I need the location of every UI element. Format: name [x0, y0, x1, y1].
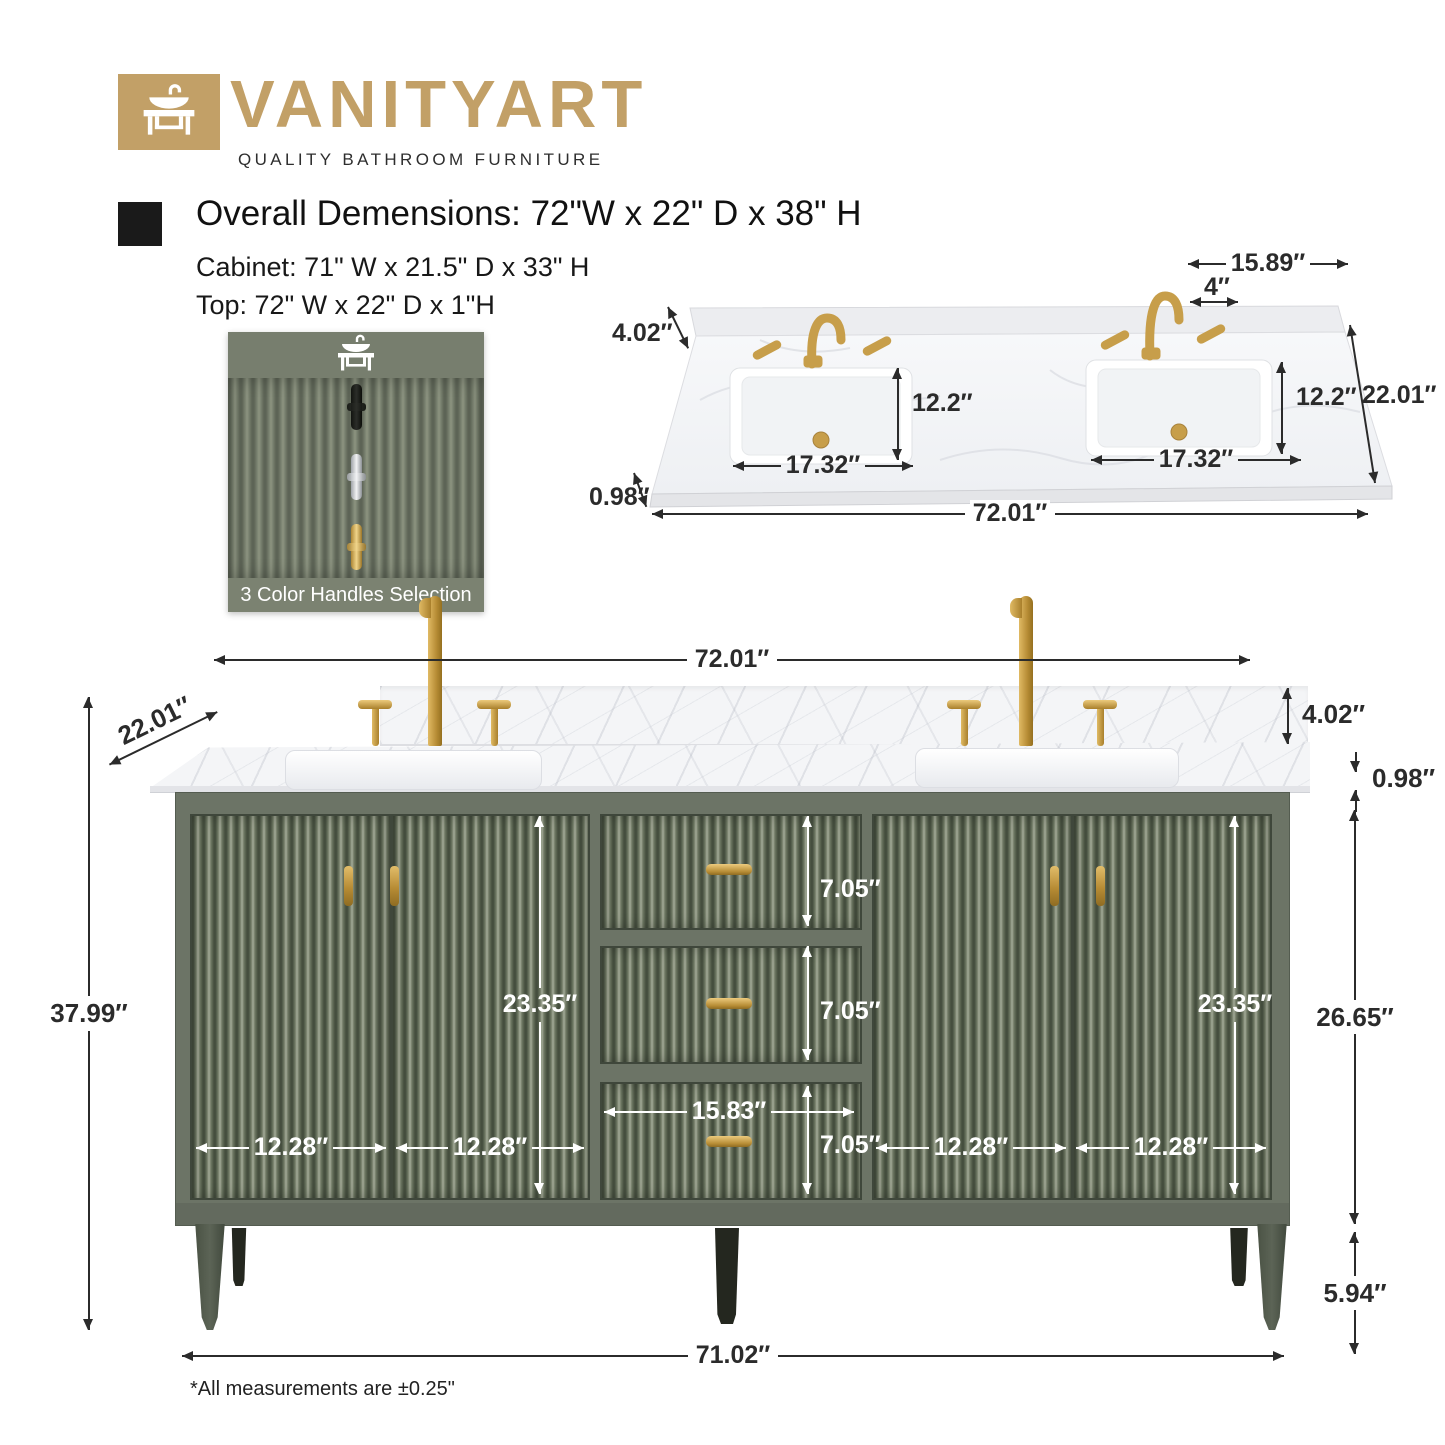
drawer-handle	[706, 864, 752, 875]
dim-top-right-sink-depth-arrow	[1281, 362, 1283, 454]
right-drain	[1171, 424, 1187, 440]
dim-label: 0.98″	[1372, 763, 1435, 793]
dimension-arrow	[196, 1147, 249, 1149]
dimension-arrow	[539, 1022, 541, 1194]
dim-front-backsplash-arrow	[1287, 688, 1289, 744]
dim-overall-height: 37.99″	[43, 697, 135, 1330]
dim-top-faucet-spacing: 4″	[1204, 274, 1230, 302]
left-faucet-handle-bar	[477, 700, 511, 709]
dimension-arrow	[1188, 263, 1226, 265]
dim-label: 37.99″	[47, 999, 131, 1028]
dim-label: 17.32″	[786, 452, 861, 480]
dim-top-left-sink-depth: 12.2″	[912, 390, 973, 418]
dimension-arrow	[652, 513, 965, 515]
dimension-arrow	[807, 816, 809, 926]
dimension-arrow	[876, 1147, 929, 1149]
left-sink-front	[285, 750, 542, 790]
panel-header-band	[228, 332, 484, 378]
front-right-leg	[1256, 1224, 1288, 1330]
dimension-arrow	[1234, 1022, 1236, 1194]
right-faucet-handle-bar	[947, 700, 981, 709]
dim-label: 12.28″	[254, 1134, 329, 1162]
dim-label: 15.89″	[1231, 250, 1306, 278]
rear-leg	[1228, 1228, 1250, 1286]
dim-label: 12.2″	[1296, 383, 1357, 411]
top-dimensions-text: Top: 72" W x 22" D x 1"H	[196, 290, 495, 321]
measurement-tolerance-note: *All measurements are ±0.25"	[190, 1378, 455, 1401]
dimension-arrow	[777, 659, 1250, 661]
handle-option-chrome	[351, 454, 362, 500]
dim-door-width-1: 12.28″	[196, 1134, 386, 1162]
dim-front-thickness: 0.98″	[1372, 764, 1435, 793]
dimension-arrow	[1076, 1147, 1129, 1149]
overall-dimensions-heading: Overall Demensions: 72"W x 22" D x 38" H	[196, 194, 862, 234]
dimension-arrow	[1013, 1147, 1066, 1149]
dim-door-width-3: 12.28″	[876, 1134, 1066, 1162]
heading-bullet	[118, 202, 162, 246]
dim-top-depth: 22.01″	[1362, 382, 1437, 410]
dimension-arrow	[88, 697, 90, 996]
dim-label: 12.2″	[912, 389, 973, 417]
dim-drawer2-arrow	[807, 946, 809, 1060]
left-faucet-handle	[372, 706, 379, 746]
dim-right-door-height: 23.35″	[1187, 816, 1283, 1194]
dim-drawer2-height: 7.05″	[820, 998, 881, 1026]
dim-cabinet-body-height: 26.65″	[1311, 810, 1399, 1224]
vanity-dimension-sheet: VANITYART QUALITY BATHROOM FURNITURE Ove…	[0, 0, 1445, 1445]
dim-label: 4.02″	[1302, 699, 1365, 729]
door-handle	[1096, 866, 1105, 906]
dim-label: 26.65″	[1313, 1003, 1397, 1032]
dim-label: 72.01″	[970, 500, 1051, 528]
dimension-arrow	[1355, 790, 1357, 812]
vanity-sink-icon	[138, 83, 200, 142]
dim-top-left-sink-width: 17.32″	[733, 452, 913, 480]
brand-tagline: QUALITY BATHROOM FURNITURE	[238, 150, 603, 170]
right-faucet-handle	[961, 706, 968, 746]
drawer-handle	[706, 1136, 752, 1147]
dimension-arrow	[1310, 263, 1348, 265]
dimension-arrow	[1354, 810, 1356, 1000]
handles-selection-panel: 3 Color Handles Selection	[228, 332, 484, 612]
dim-label: 7.05″	[820, 875, 881, 903]
dimension-arrow	[88, 1031, 90, 1330]
dim-label: 23.35″	[1198, 991, 1273, 1019]
dim-top-right-sink-width: 17.32″	[1091, 446, 1301, 474]
left-faucet-handle	[491, 706, 498, 746]
dimension-arrow	[333, 1147, 386, 1149]
dimension-arrow	[604, 1111, 687, 1113]
left-sink-basin	[730, 368, 912, 464]
dim-top-left-sink-depth-arrow	[897, 368, 899, 460]
dim-left-door-height: 23.35″	[492, 816, 588, 1194]
dimension-arrow	[778, 1355, 1284, 1357]
panel-caption-band: 3 Color Handles Selection	[228, 578, 484, 612]
dimension-arrow	[897, 368, 899, 460]
dim-front-backsplash-height: 4.02″	[1302, 700, 1365, 729]
dim-label: 72.01″	[692, 646, 773, 674]
dim-label: 15.83″	[692, 1098, 767, 1126]
left-drain	[813, 432, 829, 448]
dim-label: 7.05″	[820, 1131, 881, 1159]
dimension-arrow	[1055, 513, 1368, 515]
dim-front-thickness-arrows	[1355, 752, 1357, 812]
brand-logo	[118, 74, 220, 150]
front-left-leg	[194, 1224, 226, 1330]
dim-label: 71.02″	[693, 1342, 774, 1370]
vanity-sink-icon	[334, 334, 378, 377]
right-faucet-handle	[1097, 706, 1104, 746]
dimension-arrow	[396, 1147, 448, 1149]
dim-label: 12.28″	[934, 1134, 1009, 1162]
right-sink-front	[915, 748, 1179, 788]
brand-name: VANITYART	[230, 66, 647, 143]
dim-label: 17.32″	[1159, 446, 1234, 474]
dimension-arrow	[1355, 752, 1357, 772]
dim-drawer3-height: 7.05″	[820, 1132, 881, 1160]
door-handle	[344, 866, 353, 906]
drawer-handle	[706, 998, 752, 1009]
right-faucet-handle-bar	[1083, 700, 1117, 709]
right-sink-basin	[1086, 360, 1272, 456]
dimension-arrow	[771, 1111, 854, 1113]
center-leg	[712, 1228, 742, 1324]
dimension-arrow	[807, 946, 809, 1060]
dimension-arrow	[865, 465, 913, 467]
dim-leg-height: 5.94″	[1313, 1232, 1397, 1354]
dimension-arrow	[182, 1355, 688, 1357]
dim-drawer1-arrow	[807, 816, 809, 926]
front-backsplash	[380, 686, 1308, 746]
dim-drawer1-height: 7.05″	[820, 876, 881, 904]
left-faucet-handle-bar	[358, 700, 392, 709]
cabinet-dimensions-text: Cabinet: 71" W x 21.5" D x 33" H	[196, 252, 589, 283]
dim-label: 23.35″	[503, 991, 578, 1019]
dim-label: 4″	[1204, 273, 1230, 301]
dimension-arrow	[1354, 1232, 1356, 1276]
handle-option-gold	[351, 524, 362, 570]
dimension-arrow	[1234, 816, 1236, 988]
dimension-arrow	[1354, 1034, 1356, 1224]
handle-option-black	[351, 384, 362, 430]
dim-top-right-sink-depth: 12.2″	[1296, 384, 1357, 412]
dim-label: 22.01″	[1362, 381, 1437, 409]
dimension-arrow	[1091, 459, 1154, 461]
countertop-top-view	[595, 235, 1445, 520]
dimension-arrow	[1354, 1310, 1356, 1354]
dimension-arrow	[539, 816, 541, 988]
dimension-arrow	[1287, 688, 1289, 744]
dimension-arrow	[1238, 459, 1301, 461]
backsplash-top	[690, 306, 1345, 336]
dim-top-counter-width: 72.01″	[652, 500, 1368, 528]
rear-leg	[230, 1228, 248, 1286]
dim-label: 4.02″	[612, 319, 673, 347]
dim-front-counter-width: 72.01″	[214, 646, 1250, 674]
dimension-arrow	[1281, 362, 1283, 454]
dim-drawer-width: 15.83″	[604, 1098, 854, 1126]
dimension-arrow	[214, 659, 687, 661]
dim-label: 7.05″	[820, 997, 881, 1025]
door-handle	[390, 866, 399, 906]
dim-base-width: 71.02″	[182, 1342, 1284, 1370]
door-handle	[1050, 866, 1059, 906]
dim-top-backsplash-height: 4.02″	[612, 320, 673, 348]
dim-label: 5.94″	[1320, 1279, 1389, 1308]
dim-top-faucet-spacing-arrow	[1190, 301, 1238, 303]
dimension-arrow	[733, 465, 781, 467]
